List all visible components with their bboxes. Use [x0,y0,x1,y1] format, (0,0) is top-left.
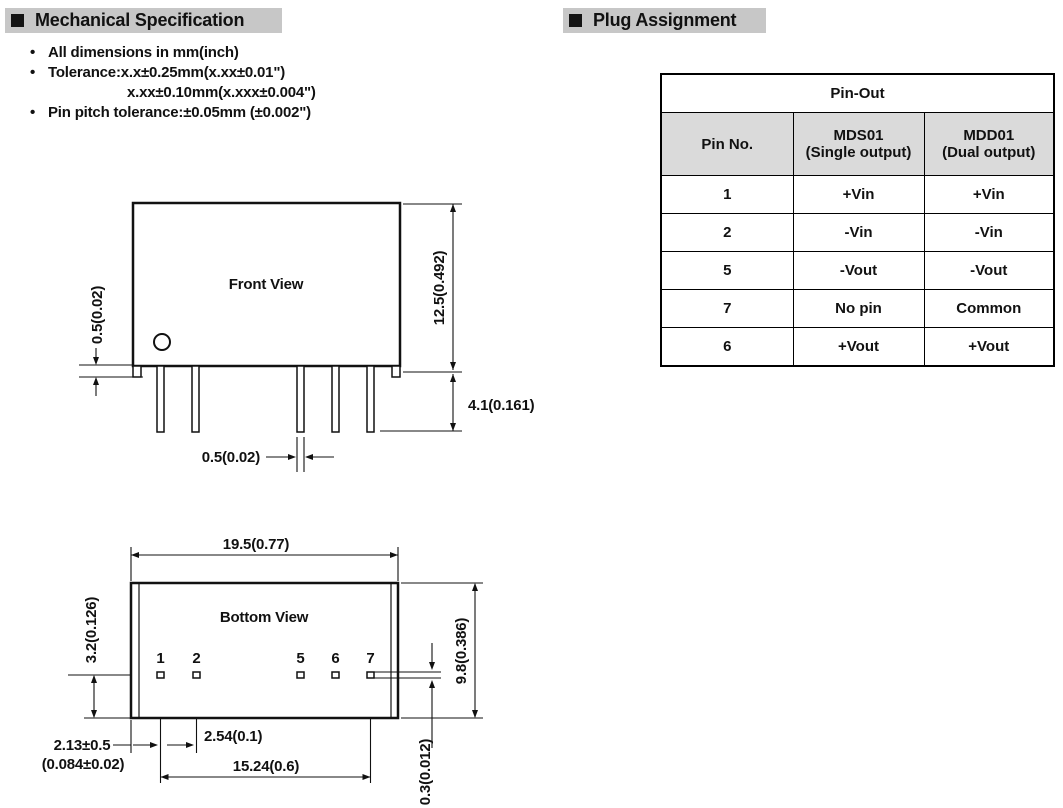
col-header-model: MDD01 [925,127,1054,144]
note-text: x.xx±0.10mm(x.xxx±0.004") [127,83,316,103]
front-view-outline [133,203,400,432]
pin1-marker-circle [154,334,170,350]
pin-number-2: 2 [192,650,200,667]
cell-mds01: No pin [793,290,924,328]
dim-pin-length-label: 4.1(0.161) [468,397,535,414]
cell-pin-no: 6 [661,328,793,367]
table-title-row: Pin-Out [661,74,1054,113]
bottom-view-outline [131,583,398,718]
note-text: Pin pitch tolerance:±0.05mm (±0.002") [48,103,311,123]
note-line: x.xx±0.10mm(x.xxx±0.004") [30,83,316,103]
dim-width-label: 19.5(0.77) [223,536,290,553]
cell-mdd01: +Vout [924,328,1054,367]
cell-pin-no: 5 [661,252,793,290]
cell-mds01: +Vin [793,176,924,214]
dim-pin-width-label: 0.5(0.02) [202,449,260,466]
col-header-sub: (Single output) [794,144,924,161]
cell-mds01: +Vout [793,328,924,367]
table-row: 5 -Vout -Vout [661,252,1054,290]
bullet-icon: • [30,103,48,123]
note-text: All dimensions in mm(inch) [48,43,239,63]
bullet-icon: • [30,43,48,63]
front-view-drawing: Front View 0.5(0.02) 12.5(0.492) 4.1(0.1… [40,170,540,490]
dim-pitch-label: 2.54(0.1) [204,728,262,745]
table-header-row: Pin No. MDS01 (Single output) MDD01 (Dua… [661,113,1054,176]
dim-span-label: 15.24(0.6) [233,758,300,775]
col-header-mdd01: MDD01 (Dual output) [924,113,1054,176]
pin-number-1: 1 [156,650,164,667]
note-text: Tolerance:x.x±0.25mm(x.xx±0.01") [48,63,285,83]
pin-number-6: 6 [331,650,339,667]
table-row: 1 +Vin +Vin [661,176,1054,214]
cell-mdd01: -Vout [924,252,1054,290]
note-line: • Tolerance:x.x±0.25mm(x.xx±0.01") [30,63,316,83]
front-view-pins [157,366,374,432]
cell-pin-no: 1 [661,176,793,214]
col-header-model: MDS01 [794,127,924,144]
pin-number-5: 5 [296,650,304,667]
cell-mds01: -Vout [793,252,924,290]
col-header-pin-no: Pin No. [661,113,793,176]
black-square-icon [569,14,582,27]
plug-assignment-title: Plug Assignment [593,10,736,31]
black-square-icon [11,14,24,27]
cell-mds01: -Vin [793,214,924,252]
table-row: 7 No pin Common [661,290,1054,328]
cell-pin-no: 7 [661,290,793,328]
cell-mdd01: +Vin [924,176,1054,214]
pin-number-7: 7 [366,650,374,667]
col-header-mds01: MDS01 (Single output) [793,113,924,176]
cell-pin-no: 2 [661,214,793,252]
col-header-sub: (Dual output) [925,144,1054,161]
pinout-table: Pin-Out Pin No. MDS01 (Single output) MD… [660,73,1055,367]
pinout-title: Pin-Out [661,74,1054,113]
dim-pin-offset-label: 3.2(0.126) [83,597,100,664]
dim-height-label: 12.5(0.492) [431,251,448,326]
dim-flange-label: 0.5(0.02) [89,286,106,344]
dim-depth-label: 9.8(0.386) [453,618,470,685]
table-row: 2 -Vin -Vin [661,214,1054,252]
dimension-notes: • All dimensions in mm(inch) • Tolerance… [30,43,316,123]
mechanical-spec-title: Mechanical Specification [35,10,244,31]
dim-pin-thickness-label: 0.3(0.012) [417,739,434,806]
bottom-view-drawing: 19.5(0.77) 3.2(0.126) 2.13±0.5 (0.084±0.… [0,525,560,808]
note-line: • Pin pitch tolerance:±0.05mm (±0.002") [30,103,316,123]
bullet-icon: • [30,63,48,83]
datasheet-page: Mechanical Specification Plug Assignment… [0,0,1063,808]
note-line: • All dimensions in mm(inch) [30,43,316,63]
table-row: 6 +Vout +Vout [661,328,1054,367]
bottom-view-title: Bottom View [220,609,309,626]
cell-mdd01: Common [924,290,1054,328]
mechanical-spec-header: Mechanical Specification [5,8,282,33]
front-view-title: Front View [229,276,304,293]
dim-pin1-offset-label-mm: 2.13±0.5 [54,737,111,754]
plug-assignment-header: Plug Assignment [563,8,766,33]
cell-mdd01: -Vin [924,214,1054,252]
dim-pin1-offset-label-inch: (0.084±0.02) [42,756,125,773]
